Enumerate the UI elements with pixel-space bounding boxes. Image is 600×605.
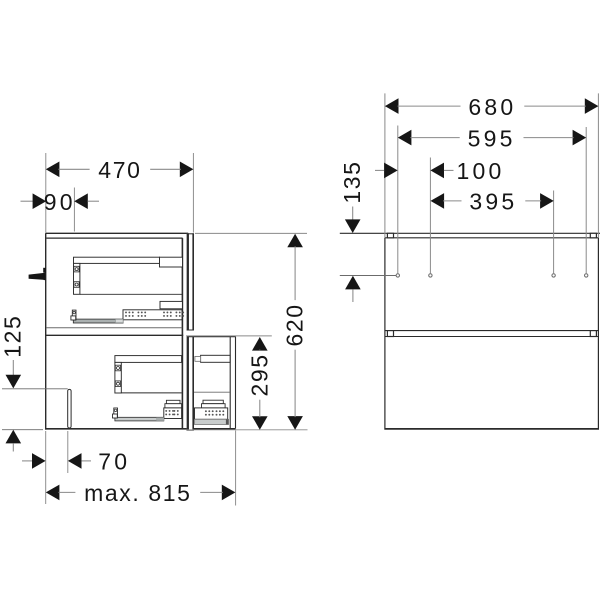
svg-text:135: 135 (339, 160, 365, 203)
svg-text:70: 70 (98, 449, 130, 475)
svg-text:470: 470 (98, 157, 141, 183)
svg-text:680: 680 (468, 94, 516, 120)
svg-text:595: 595 (468, 125, 516, 151)
svg-text:90: 90 (44, 189, 76, 215)
svg-text:125: 125 (0, 315, 26, 358)
svg-text:395: 395 (469, 189, 517, 215)
svg-text:max. 815: max. 815 (84, 480, 191, 506)
svg-text:295: 295 (246, 353, 272, 396)
svg-text:620: 620 (282, 303, 308, 346)
svg-text:100: 100 (457, 158, 505, 184)
